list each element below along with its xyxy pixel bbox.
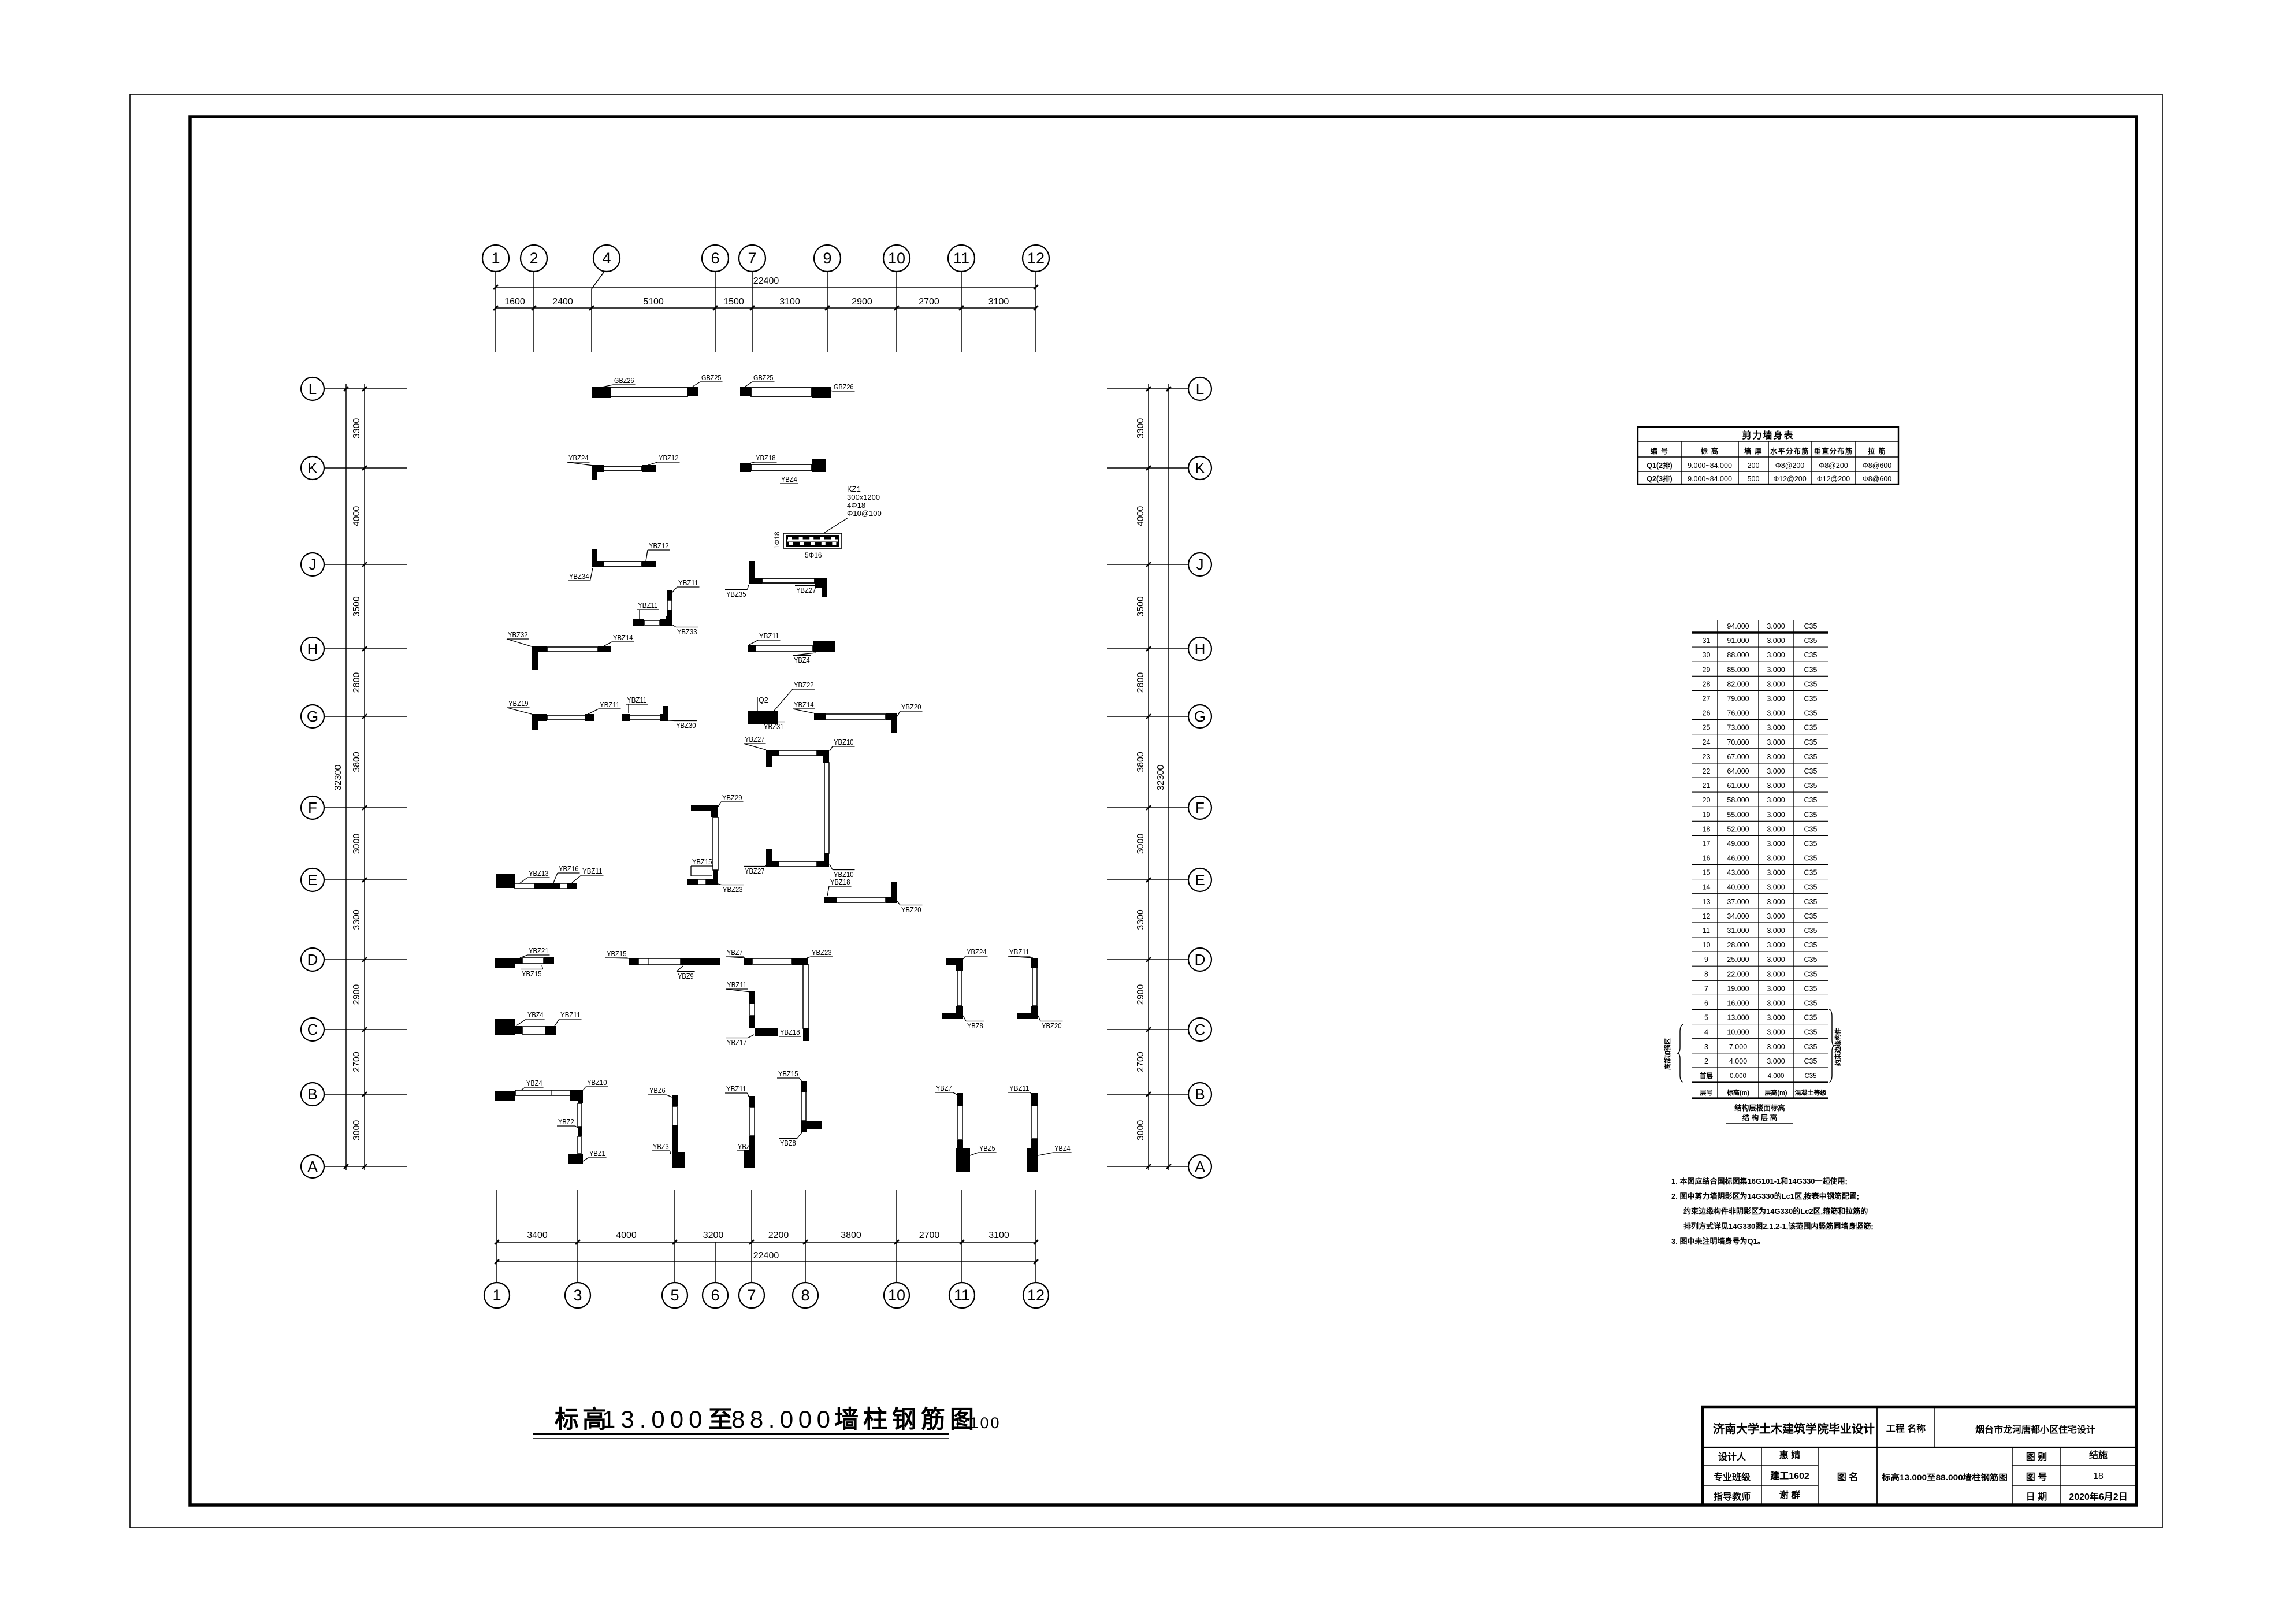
svg-text:排列方式详见14G330图2.1.2-1,该范围内竖筋同墙身: 排列方式详见14G330图2.1.2-1,该范围内竖筋同墙身竖筋;	[1683, 1222, 1874, 1231]
svg-text:YBZ34: YBZ34	[569, 573, 589, 581]
svg-text:3000: 3000	[352, 834, 362, 854]
svg-text:YBZ12: YBZ12	[649, 542, 669, 550]
svg-text:Φ10@100: Φ10@100	[847, 509, 882, 518]
svg-text:3.000: 3.000	[1767, 999, 1785, 1008]
svg-text:YBZ4: YBZ4	[738, 1143, 754, 1151]
svg-text:YBZ13: YBZ13	[529, 869, 549, 878]
svg-text:YBZ35: YBZ35	[726, 590, 746, 599]
svg-text:12: 12	[1703, 912, 1711, 920]
svg-text:设计人: 设计人	[1718, 1451, 1746, 1462]
svg-text:3.000: 3.000	[1767, 1014, 1785, 1022]
svg-text:10: 10	[888, 1287, 905, 1304]
svg-text:18: 18	[1703, 825, 1711, 833]
svg-text:3500: 3500	[1136, 596, 1146, 617]
svg-text:YBZ9: YBZ9	[678, 972, 694, 980]
svg-text:3.000: 3.000	[1767, 912, 1785, 920]
svg-text:济南大学土木建筑学院毕业设计: 济南大学土木建筑学院毕业设计	[1713, 1422, 1875, 1436]
svg-text:0.000: 0.000	[1730, 1073, 1746, 1080]
svg-text:10.000: 10.000	[1727, 1028, 1749, 1036]
svg-text:7: 7	[1704, 984, 1708, 993]
svg-text:3.000: 3.000	[1767, 1057, 1785, 1065]
svg-text:1: 1	[492, 1287, 501, 1304]
svg-text:C35: C35	[1804, 709, 1818, 718]
svg-text:Φ12@200: Φ12@200	[1817, 475, 1850, 483]
svg-text:2: 2	[1704, 1057, 1708, 1065]
svg-text:8: 8	[801, 1287, 809, 1304]
svg-text:E: E	[307, 871, 317, 889]
svg-text:85.000: 85.000	[1727, 666, 1749, 674]
svg-text:3.000: 3.000	[1767, 883, 1785, 891]
svg-text:A: A	[307, 1158, 318, 1175]
svg-text:2800: 2800	[352, 672, 362, 693]
svg-text:C35: C35	[1804, 1043, 1818, 1051]
svg-text:烟台市龙河唐都小区住宅设计: 烟台市龙河唐都小区住宅设计	[1975, 1424, 2095, 1435]
svg-text:10: 10	[888, 250, 905, 267]
svg-text:图 别: 图 别	[2026, 1452, 2047, 1462]
svg-text:剪力墙身表: 剪力墙身表	[1742, 430, 1794, 441]
svg-text:88.000: 88.000	[731, 1406, 835, 1433]
svg-text:2900: 2900	[1136, 984, 1146, 1005]
svg-text:D: D	[307, 951, 318, 968]
svg-text:5: 5	[670, 1287, 679, 1304]
svg-text:YBZ23: YBZ23	[723, 886, 743, 894]
svg-text:C35: C35	[1804, 796, 1818, 804]
svg-text:F: F	[1195, 799, 1205, 816]
svg-text:5: 5	[1704, 1014, 1708, 1022]
svg-text:C35: C35	[1804, 956, 1818, 964]
svg-text:G: G	[1194, 708, 1206, 725]
svg-text:L: L	[1196, 380, 1204, 397]
svg-text:E: E	[1195, 871, 1205, 889]
svg-text:3.000: 3.000	[1767, 767, 1785, 775]
svg-text:YBZ4: YBZ4	[526, 1079, 542, 1087]
svg-text:3100: 3100	[779, 297, 800, 307]
svg-text:标高13.000至88.000墙柱钢筋图: 标高13.000至88.000墙柱钢筋图	[1881, 1473, 2008, 1482]
svg-text:1: 1	[491, 250, 500, 267]
svg-text:73.000: 73.000	[1727, 724, 1749, 732]
svg-text:2: 2	[529, 250, 538, 267]
svg-text:YBZ20: YBZ20	[901, 906, 921, 914]
svg-text:20: 20	[1703, 796, 1711, 804]
svg-text:C35: C35	[1804, 869, 1818, 877]
svg-text:5Φ16: 5Φ16	[805, 551, 822, 559]
svg-text:YBZ30: YBZ30	[676, 722, 696, 730]
svg-text:23: 23	[1703, 753, 1711, 761]
svg-text:11: 11	[954, 1287, 970, 1304]
svg-text:22: 22	[1703, 767, 1711, 775]
svg-text:C35: C35	[1804, 1014, 1818, 1022]
svg-text:3300: 3300	[352, 418, 362, 439]
svg-text:27: 27	[1703, 695, 1711, 703]
svg-text:82.000: 82.000	[1727, 680, 1749, 688]
svg-text:C35: C35	[1804, 927, 1818, 935]
svg-text:至: 至	[708, 1406, 733, 1433]
svg-text:YBZ6: YBZ6	[649, 1087, 666, 1095]
svg-text:混凝土等级: 混凝土等级	[1795, 1088, 1827, 1097]
svg-text:3.000: 3.000	[1767, 840, 1785, 848]
svg-text:YBZ11: YBZ11	[560, 1011, 581, 1019]
svg-text:YBZ11: YBZ11	[1009, 948, 1030, 956]
svg-text:200: 200	[1748, 462, 1760, 470]
svg-text:1Φ18: 1Φ18	[773, 532, 781, 549]
svg-text:C35: C35	[1804, 767, 1818, 775]
svg-text:垂直分布筋: 垂直分布筋	[1814, 447, 1853, 455]
svg-text:49.000: 49.000	[1727, 840, 1749, 848]
svg-text:YBZ27: YBZ27	[796, 586, 816, 594]
svg-text:6: 6	[1704, 999, 1708, 1008]
svg-text:3300: 3300	[1136, 418, 1146, 439]
svg-text:70.000: 70.000	[1727, 738, 1749, 746]
svg-text:A: A	[1195, 1158, 1205, 1175]
svg-text:YBZ20: YBZ20	[901, 703, 921, 711]
svg-text:C35: C35	[1804, 984, 1818, 993]
svg-text:GBZ25: GBZ25	[753, 374, 774, 382]
svg-text:9.000~84.000: 9.000~84.000	[1688, 475, 1732, 483]
svg-text:Φ8@600: Φ8@600	[1863, 475, 1892, 483]
svg-text:层号: 层号	[1700, 1089, 1713, 1097]
svg-text:图 名: 图 名	[1837, 1471, 1858, 1482]
svg-text:4000: 4000	[352, 506, 362, 527]
svg-text:3000: 3000	[1136, 1120, 1146, 1141]
svg-text:2400: 2400	[552, 297, 573, 307]
svg-text:10: 10	[1703, 941, 1711, 949]
svg-text:6: 6	[711, 250, 719, 267]
svg-text:C35: C35	[1804, 999, 1818, 1008]
svg-text:约束边缘构件: 约束边缘构件	[1834, 1028, 1842, 1066]
svg-text:2700: 2700	[919, 297, 939, 307]
svg-text:16.000: 16.000	[1727, 999, 1749, 1008]
svg-text:3.000: 3.000	[1767, 970, 1785, 978]
svg-text:12: 12	[1027, 250, 1045, 267]
svg-text:C35: C35	[1804, 782, 1818, 790]
svg-text:3100: 3100	[988, 297, 1009, 307]
svg-text:C35: C35	[1804, 695, 1818, 703]
svg-text:3300: 3300	[352, 909, 362, 930]
svg-text:500: 500	[1748, 475, 1760, 483]
svg-text:4.000: 4.000	[1768, 1073, 1785, 1080]
svg-text:17: 17	[1703, 840, 1711, 848]
svg-text:YBZ17: YBZ17	[727, 1039, 747, 1047]
svg-text:15: 15	[1703, 869, 1711, 877]
svg-text:3500: 3500	[352, 596, 362, 617]
svg-text:7: 7	[747, 1287, 756, 1304]
svg-text:GBZ26: GBZ26	[834, 383, 854, 391]
svg-text:32300: 32300	[1156, 765, 1166, 791]
svg-text:3800: 3800	[352, 752, 362, 772]
svg-text:层高(m): 层高(m)	[1764, 1088, 1787, 1097]
svg-text:9: 9	[1704, 956, 1708, 964]
svg-text:3000: 3000	[1136, 834, 1146, 854]
svg-text:底部加强区: 底部加强区	[1663, 1038, 1671, 1070]
svg-text:C: C	[1195, 1021, 1206, 1038]
svg-text:YBZ20: YBZ20	[1042, 1022, 1062, 1030]
svg-text:28: 28	[1703, 680, 1711, 688]
svg-text:19: 19	[1703, 811, 1711, 819]
svg-text:J: J	[309, 556, 317, 573]
svg-text:YBZ15: YBZ15	[522, 970, 542, 978]
svg-text:22400: 22400	[753, 1251, 779, 1261]
svg-text:结施: 结施	[2088, 1450, 2108, 1461]
svg-text:2. 图中剪力墙阴影区为14G330的Lc1区,按表中钢筋配: 2. 图中剪力墙阴影区为14G330的Lc1区,按表中钢筋配置;	[1671, 1192, 1859, 1201]
svg-text:13: 13	[1703, 898, 1711, 906]
svg-text:40.000: 40.000	[1727, 883, 1749, 891]
svg-text:91.000: 91.000	[1727, 637, 1749, 645]
svg-text:C35: C35	[1804, 840, 1818, 848]
svg-text:7.000: 7.000	[1729, 1043, 1747, 1051]
svg-text:31: 31	[1703, 637, 1711, 645]
svg-text:YBZ8: YBZ8	[780, 1139, 796, 1147]
svg-text:J: J	[1196, 556, 1204, 573]
svg-text:2700: 2700	[352, 1051, 362, 1072]
svg-text:YBZ14: YBZ14	[794, 701, 814, 709]
svg-text:YBZ18: YBZ18	[830, 878, 850, 886]
svg-text:YBZ31: YBZ31	[764, 723, 784, 731]
svg-text:3.000: 3.000	[1767, 869, 1785, 877]
svg-text:YBZ4: YBZ4	[781, 475, 797, 484]
svg-text:2700: 2700	[919, 1231, 940, 1240]
svg-text:2020年6月2日: 2020年6月2日	[2069, 1491, 2127, 1502]
svg-text:C35: C35	[1804, 680, 1818, 688]
svg-text:13.000: 13.000	[1727, 1014, 1749, 1022]
svg-text:Q2: Q2	[759, 696, 768, 704]
svg-text:3800: 3800	[1136, 752, 1146, 772]
svg-text:79.000: 79.000	[1727, 695, 1749, 703]
svg-text:H: H	[1195, 640, 1206, 657]
svg-text:YBZ5: YBZ5	[979, 1144, 995, 1153]
svg-text:3000: 3000	[352, 1120, 362, 1141]
svg-text:16: 16	[1703, 854, 1711, 863]
svg-text:Φ12@200: Φ12@200	[1773, 475, 1806, 483]
svg-text:编 号: 编 号	[1650, 447, 1669, 455]
svg-text:52.000: 52.000	[1727, 825, 1749, 833]
svg-text:C35: C35	[1804, 941, 1818, 949]
svg-text:YBZ11: YBZ11	[726, 1085, 746, 1093]
svg-text:37.000: 37.000	[1727, 898, 1749, 906]
svg-text:YBZ16: YBZ16	[559, 865, 579, 873]
svg-text:Q1(2排): Q1(2排)	[1647, 461, 1672, 470]
svg-text:YBZ11: YBZ11	[727, 981, 747, 989]
svg-text:3.000: 3.000	[1767, 811, 1785, 819]
svg-text:YBZ12: YBZ12	[659, 454, 679, 462]
svg-text:C35: C35	[1804, 825, 1818, 833]
svg-text:12: 12	[1027, 1287, 1045, 1304]
svg-text:26: 26	[1703, 709, 1711, 718]
svg-text:61.000: 61.000	[1727, 782, 1749, 790]
svg-text:3.000: 3.000	[1767, 695, 1785, 703]
svg-text:YBZ10: YBZ10	[587, 1079, 607, 1087]
svg-text:YBZ18: YBZ18	[780, 1028, 800, 1036]
svg-text:首层: 首层	[1700, 1072, 1714, 1080]
svg-text:28.000: 28.000	[1727, 941, 1749, 949]
svg-text:工程 名称: 工程 名称	[1886, 1423, 1926, 1434]
svg-text:YBZ11: YBZ11	[600, 701, 620, 709]
svg-text:YBZ24: YBZ24	[568, 454, 589, 462]
svg-text:B: B	[307, 1086, 317, 1103]
svg-text:46.000: 46.000	[1727, 854, 1749, 863]
svg-text:拉 筋: 拉 筋	[1868, 447, 1886, 455]
svg-text:YBZ11: YBZ11	[627, 696, 647, 704]
svg-text:29: 29	[1703, 666, 1711, 674]
svg-text:4000: 4000	[1136, 506, 1146, 527]
svg-text:YBZ11: YBZ11	[1009, 1084, 1030, 1092]
svg-text:3100: 3100	[988, 1231, 1009, 1240]
svg-text:3.000: 3.000	[1767, 738, 1785, 746]
svg-text:3.000: 3.000	[1767, 666, 1785, 674]
svg-text:58.000: 58.000	[1727, 796, 1749, 804]
svg-text:C35: C35	[1804, 854, 1818, 863]
svg-text:300x1200: 300x1200	[847, 493, 880, 501]
svg-text:YBZ2: YBZ2	[558, 1118, 574, 1126]
svg-text:标 高: 标 高	[1700, 447, 1719, 455]
svg-text:7: 7	[748, 250, 756, 267]
svg-text:G: G	[307, 708, 318, 725]
svg-text:惠 婧: 惠 婧	[1779, 1450, 1800, 1461]
svg-text:YBZ19: YBZ19	[508, 700, 529, 708]
svg-text:结 构 层 高: 结 构 层 高	[1742, 1113, 1777, 1122]
svg-text:YBZ15: YBZ15	[778, 1070, 798, 1078]
svg-text:C35: C35	[1804, 651, 1818, 659]
svg-text:2900: 2900	[852, 297, 872, 307]
svg-text:YBZ14: YBZ14	[613, 634, 633, 642]
svg-text:建工1602: 建工1602	[1770, 1471, 1809, 1481]
svg-text:13.000: 13.000	[602, 1406, 707, 1433]
svg-text:3.000: 3.000	[1767, 854, 1785, 863]
svg-text:YBZ1: YBZ1	[589, 1150, 605, 1158]
svg-text:C: C	[307, 1021, 318, 1038]
svg-text:6: 6	[711, 1287, 719, 1304]
svg-text:YBZ24: YBZ24	[967, 948, 987, 956]
svg-text:43.000: 43.000	[1727, 869, 1749, 877]
svg-text:34.000: 34.000	[1727, 912, 1749, 920]
svg-text:30: 30	[1703, 651, 1711, 659]
svg-text:88.000: 88.000	[1727, 651, 1749, 659]
svg-text:YBZ32: YBZ32	[508, 631, 528, 639]
svg-text:Q2(3排): Q2(3排)	[1647, 474, 1672, 483]
svg-text:4: 4	[1704, 1028, 1708, 1036]
svg-text:C35: C35	[1804, 637, 1818, 645]
svg-text:2900: 2900	[352, 984, 362, 1005]
svg-text:专业班级: 专业班级	[1714, 1471, 1751, 1482]
svg-text:C35: C35	[1804, 724, 1818, 732]
svg-text:55.000: 55.000	[1727, 811, 1749, 819]
svg-text:YBZ15: YBZ15	[607, 950, 627, 958]
svg-text:3.000: 3.000	[1767, 1043, 1785, 1051]
svg-text:YBZ23: YBZ23	[812, 949, 832, 957]
svg-text:1:100: 1:100	[953, 1414, 1001, 1432]
svg-text:YBZ10: YBZ10	[834, 738, 854, 746]
svg-text:YBZ11: YBZ11	[638, 601, 658, 610]
svg-text:C35: C35	[1804, 666, 1818, 674]
svg-text:3.000: 3.000	[1767, 651, 1785, 659]
svg-text:图 号: 图 号	[2026, 1472, 2047, 1482]
svg-text:K: K	[1195, 459, 1205, 477]
svg-text:21: 21	[1703, 782, 1711, 790]
svg-text:11: 11	[953, 250, 969, 267]
svg-text:3.000: 3.000	[1767, 941, 1785, 949]
svg-text:3.000: 3.000	[1767, 637, 1785, 645]
svg-text:3.000: 3.000	[1767, 709, 1785, 718]
svg-text:25.000: 25.000	[1727, 956, 1749, 964]
svg-text:3.000: 3.000	[1767, 680, 1785, 688]
svg-text:3: 3	[1704, 1043, 1708, 1051]
svg-text:32300: 32300	[333, 765, 343, 791]
svg-text:3800: 3800	[841, 1231, 861, 1240]
svg-text:YBZ3: YBZ3	[653, 1143, 669, 1151]
svg-text:B: B	[1195, 1086, 1205, 1103]
svg-text:C35: C35	[1804, 753, 1818, 761]
svg-text:18: 18	[2093, 1471, 2104, 1481]
svg-text:C35: C35	[1804, 1073, 1816, 1080]
svg-text:C35: C35	[1804, 738, 1818, 746]
svg-text:K: K	[307, 459, 318, 477]
svg-text:Φ8@200: Φ8@200	[1819, 462, 1848, 470]
svg-text:水平分布筋: 水平分布筋	[1770, 447, 1809, 455]
svg-text:YBZ11: YBZ11	[678, 579, 698, 587]
svg-text:3.000: 3.000	[1767, 825, 1785, 833]
svg-text:YBZ21: YBZ21	[529, 947, 549, 955]
svg-text:D: D	[1195, 951, 1206, 968]
svg-text:22400: 22400	[753, 276, 779, 286]
svg-text:标高(m): 标高(m)	[1726, 1088, 1749, 1097]
svg-text:3.000: 3.000	[1767, 956, 1785, 964]
svg-text:Φ8@600: Φ8@600	[1863, 462, 1892, 470]
svg-text:9.000~84.000: 9.000~84.000	[1688, 462, 1732, 470]
svg-text:3.000: 3.000	[1767, 753, 1785, 761]
svg-text:YBZ8: YBZ8	[967, 1022, 983, 1030]
svg-text:C35: C35	[1804, 1028, 1818, 1036]
svg-text:2200: 2200	[768, 1231, 789, 1240]
svg-text:KZ1: KZ1	[847, 485, 861, 493]
svg-text:L: L	[309, 380, 317, 397]
svg-text:67.000: 67.000	[1727, 753, 1749, 761]
svg-text:C35: C35	[1804, 622, 1818, 630]
svg-text:64.000: 64.000	[1727, 767, 1749, 775]
svg-text:YBZ7: YBZ7	[936, 1084, 952, 1092]
svg-text:8: 8	[1704, 970, 1708, 978]
svg-text:F: F	[308, 799, 317, 816]
svg-text:9: 9	[823, 250, 831, 267]
svg-text:24: 24	[1703, 738, 1711, 746]
svg-text:YBZ22: YBZ22	[794, 681, 814, 689]
svg-text:2700: 2700	[1136, 1051, 1146, 1072]
svg-text:4: 4	[602, 250, 611, 267]
svg-text:3. 图中未注明墙身号为Q1。: 3. 图中未注明墙身号为Q1。	[1671, 1237, 1765, 1246]
svg-text:C35: C35	[1804, 898, 1818, 906]
svg-text:3300: 3300	[1136, 909, 1146, 930]
svg-text:3.000: 3.000	[1767, 984, 1785, 993]
svg-text:结构层楼面标高: 结构层楼面标高	[1734, 1103, 1785, 1112]
svg-text:谢 群: 谢 群	[1779, 1489, 1800, 1500]
svg-text:94.000: 94.000	[1727, 622, 1749, 630]
svg-text:H: H	[307, 640, 318, 657]
svg-text:1600: 1600	[504, 297, 525, 307]
svg-text:YBZ11: YBZ11	[582, 867, 603, 875]
svg-text:YBZ10: YBZ10	[834, 871, 854, 879]
svg-text:31.000: 31.000	[1727, 927, 1749, 935]
svg-text:YBZ7: YBZ7	[727, 949, 743, 957]
svg-text:5100: 5100	[643, 297, 664, 307]
svg-text:3200: 3200	[703, 1231, 724, 1240]
svg-text:2800: 2800	[1136, 672, 1146, 693]
svg-text:YBZ4: YBZ4	[794, 656, 810, 664]
svg-text:YBZ11: YBZ11	[759, 632, 779, 640]
svg-text:YBZ33: YBZ33	[677, 628, 697, 636]
svg-text:25: 25	[1703, 724, 1711, 732]
svg-text:C35: C35	[1804, 912, 1818, 920]
svg-text:YBZ4: YBZ4	[527, 1011, 544, 1019]
svg-text:19.000: 19.000	[1727, 984, 1749, 993]
svg-text:YBZ27: YBZ27	[745, 867, 765, 875]
